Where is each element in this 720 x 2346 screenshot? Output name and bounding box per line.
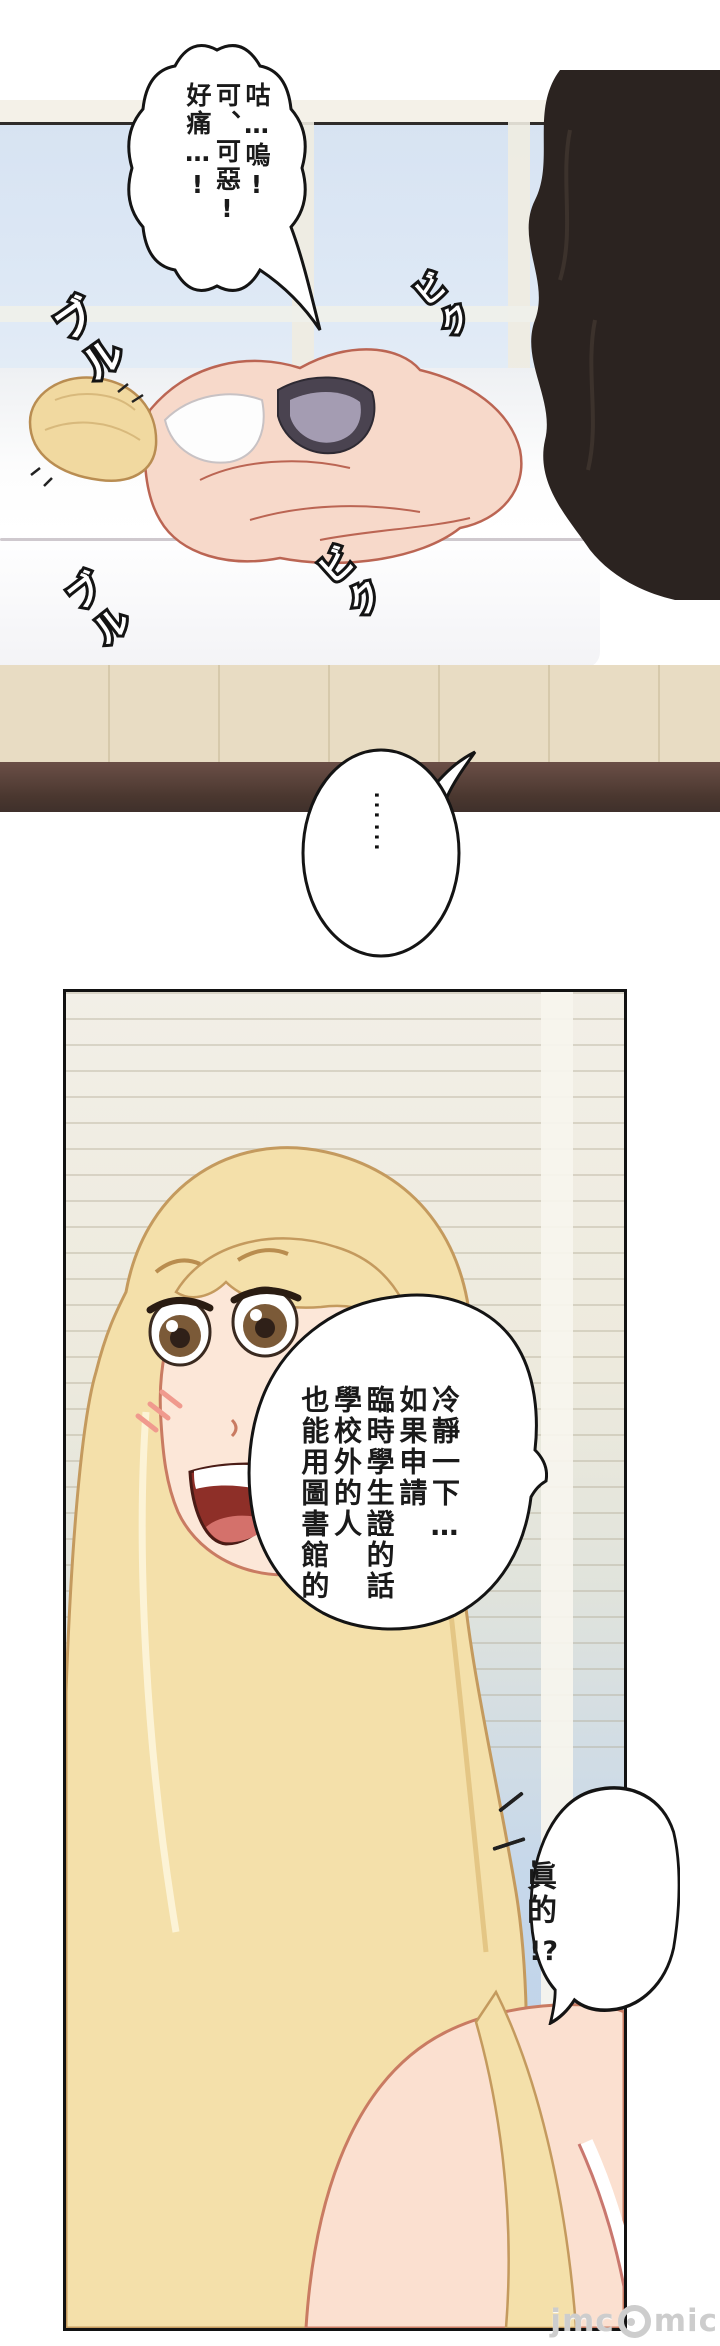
bubble-text-column: 也能用圖書館的 [299, 1385, 329, 1620]
ellipsis-bubble-text: …… [362, 790, 402, 920]
bubble-text-column: 好痛…! [184, 82, 212, 252]
panel-girl-closeup [63, 989, 627, 2331]
bubble-text-column: 冷靜一下… [429, 1385, 459, 1620]
watermark-suffix: mic [654, 2303, 718, 2339]
speech-bubble-really-punctuation: !? [524, 1936, 564, 1967]
bubble-text-column: 可、可惡! [213, 82, 241, 252]
bubble-text-column: 咕…嗚! [243, 82, 271, 252]
bubble-text-column: 臨時學生證的話 [364, 1385, 394, 1620]
speech-bubble-explain-text: 冷靜一下… 如果申請 臨時學生證的話 學校外的人 也能用圖書館的 [270, 1385, 462, 1620]
comic-page: 咕…嗚! 可、可惡! 好痛…! ブル ビク ビク ブル …… [0, 0, 720, 2346]
smiling-girl-illustration [66, 992, 624, 2328]
speech-bubble-really-text: 眞的 [524, 1860, 560, 1940]
bubble-text-column: 如果申請 [397, 1385, 427, 1620]
dark-haired-head-silhouette [500, 70, 720, 605]
watermark-prefix: jmc [550, 2303, 614, 2339]
watermark: jmc mic [550, 2303, 718, 2339]
bubble-text-column: 學校外的人 [331, 1385, 361, 1620]
speech-bubble-pain-text: 咕…嗚! 可、可惡! 好痛…! [188, 82, 272, 252]
jmcomic-logo-icon [618, 2305, 651, 2338]
